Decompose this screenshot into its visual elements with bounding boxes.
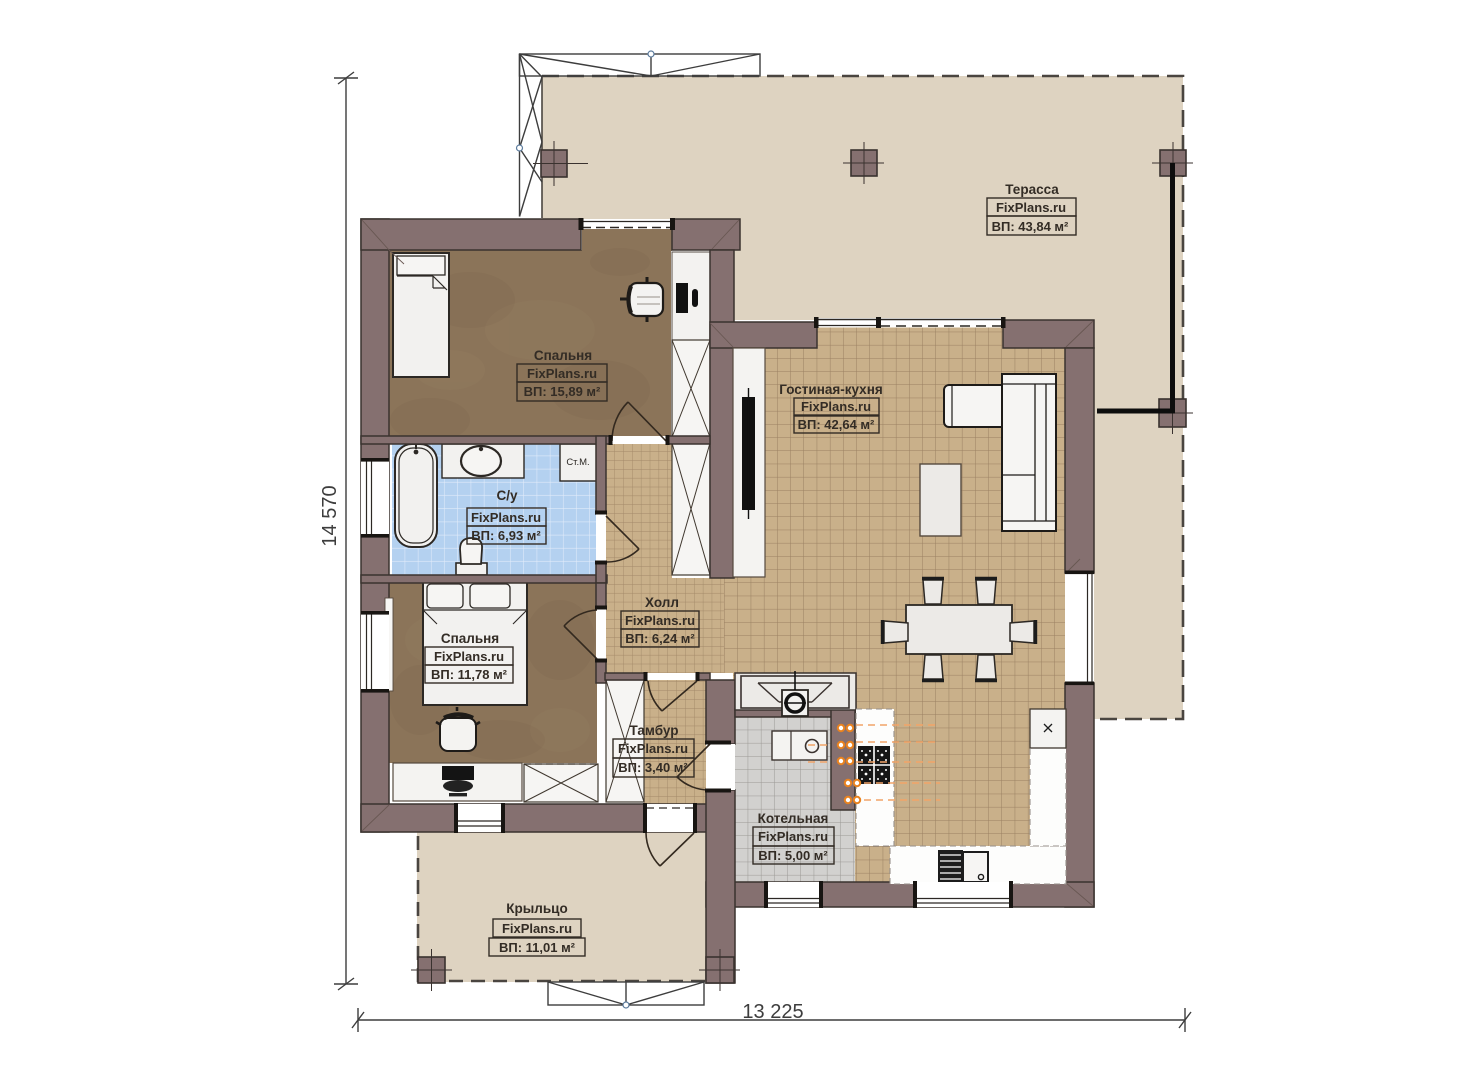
svg-text:13 225: 13 225 (742, 1001, 803, 1023)
svg-text:Гостиная-кухня: Гостиная-кухня (779, 382, 882, 397)
svg-text:Котельная: Котельная (758, 811, 829, 826)
svg-text:С/у: С/у (496, 488, 518, 503)
svg-text:Терасса: Терасса (1005, 182, 1059, 197)
svg-text:FixPlans.ru: FixPlans.ru (434, 649, 504, 664)
svg-text:Спальня: Спальня (441, 631, 499, 646)
svg-text:ВП: 43,84 м²: ВП: 43,84 м² (992, 219, 1069, 234)
svg-text:ВП: 11,78 м²: ВП: 11,78 м² (431, 667, 508, 682)
svg-text:FixPlans.ru: FixPlans.ru (996, 200, 1066, 215)
svg-text:FixPlans.ru: FixPlans.ru (618, 741, 688, 756)
svg-text:FixPlans.ru: FixPlans.ru (527, 366, 597, 381)
svg-text:Ст.М.: Ст.М. (566, 457, 589, 468)
svg-text:FixPlans.ru: FixPlans.ru (625, 613, 695, 628)
svg-text:ВП: 5,00 м²: ВП: 5,00 м² (758, 848, 828, 863)
svg-text:ВП: 3,40 м²: ВП: 3,40 м² (618, 760, 688, 775)
svg-text:FixPlans.ru: FixPlans.ru (801, 399, 871, 414)
svg-text:Холл: Холл (645, 595, 679, 610)
svg-text:ВП: 11,01 м²: ВП: 11,01 м² (499, 940, 576, 955)
svg-text:ВП: 15,89 м²: ВП: 15,89 м² (524, 384, 601, 399)
svg-text:14 570: 14 570 (319, 485, 341, 546)
svg-text:Спальня: Спальня (534, 348, 592, 363)
svg-text:ВП: 6,93 м²: ВП: 6,93 м² (471, 528, 541, 543)
svg-text:Тамбур: Тамбур (630, 723, 679, 738)
svg-text:Крыльцо: Крыльцо (506, 901, 567, 916)
svg-text:ВП: 42,64 м²: ВП: 42,64 м² (798, 417, 875, 432)
svg-text:FixPlans.ru: FixPlans.ru (471, 510, 541, 525)
svg-text:ВП: 6,24 м²: ВП: 6,24 м² (625, 631, 695, 646)
svg-text:FixPlans.ru: FixPlans.ru (758, 829, 828, 844)
svg-text:FixPlans.ru: FixPlans.ru (502, 921, 572, 936)
